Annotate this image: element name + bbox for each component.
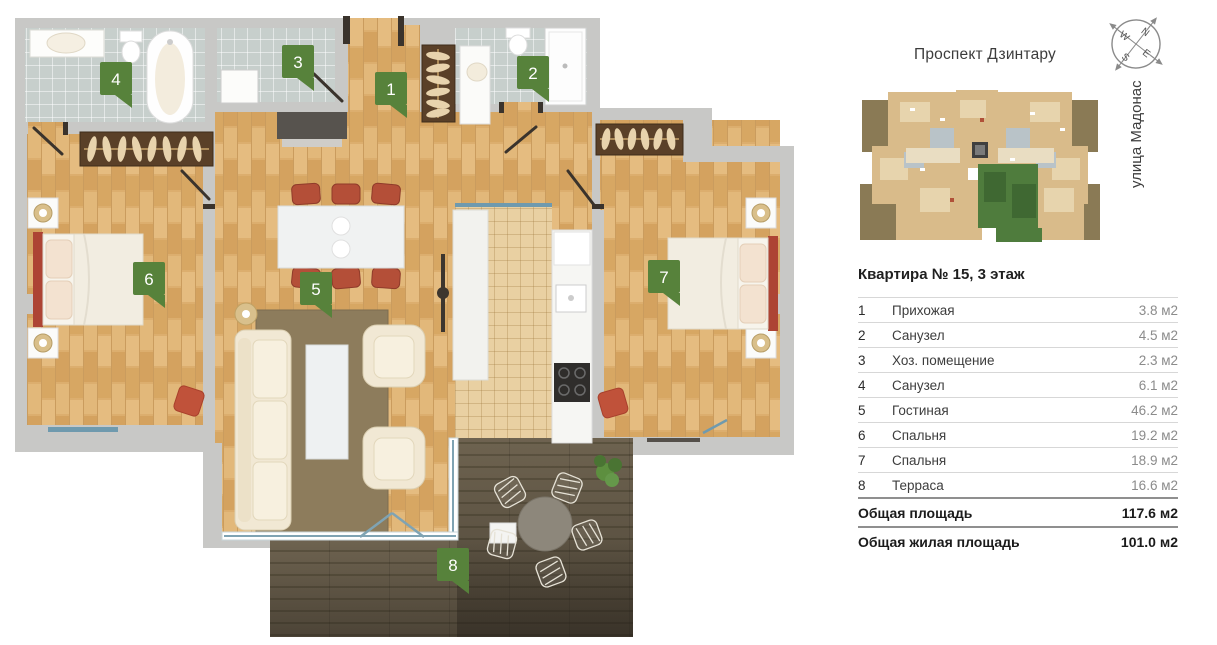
dining-chair [371,183,401,205]
hall-dresser [277,112,347,139]
stove [554,363,590,402]
duvet [74,234,143,325]
kitchen-window [455,203,552,207]
kitchen-island [453,210,488,380]
street-label-right: улица Мадонас [1128,8,1145,188]
sink-basin [47,33,85,53]
washing-machine [221,70,258,103]
pillow [46,281,72,319]
svg-text:8: 8 [448,556,457,575]
terrace-table [518,497,572,551]
svg-text:5: 5 [311,280,320,299]
bed-headboard [33,232,43,327]
pillow [740,244,766,282]
area-row: 1 Прихожая 3.8 м2 [858,297,1178,322]
sofa [235,330,291,530]
area-row: 6 Спальня 19.2 м2 [858,422,1178,447]
sink-basin [467,63,487,81]
toilet-bowl [122,41,140,63]
svg-text:2: 2 [528,64,537,83]
bedroom7-window [647,438,700,442]
plate [332,240,350,258]
floorplan-page: 1 2 3 4 5 6 7 8 Проспект Дзинтару N E S … [0,0,1217,645]
dining-chair [291,183,320,205]
wardrobe-bedroom7 [596,124,683,155]
entrance-gap [350,18,398,28]
sink-counter [460,46,490,124]
bed-headboard [768,236,778,331]
dining-chair [331,267,361,289]
street-label-top: Проспект Дзинтару [845,46,1125,64]
wardrobe-left [80,132,213,166]
selected-apartment-highlight [978,164,1042,242]
bedroom6-window [48,427,118,432]
coffee-table [306,345,348,459]
svg-text:4: 4 [111,70,120,89]
apartment-info-panel: Квартира № 15, 3 этаж 1 Прихожая 3.8 м2 … [858,266,1178,555]
area-row: 3 Хоз. помещение 2.3 м2 [858,347,1178,372]
floor-plan: 1 2 3 4 5 6 7 8 [0,0,820,645]
area-row: 8 Терраса 16.6 м2 [858,472,1178,497]
svg-text:7: 7 [659,268,668,287]
svg-text:1: 1 [386,80,395,99]
dining-chair [332,184,360,204]
area-row: 4 Санузел 6.1 м2 [858,372,1178,397]
armchair [363,427,425,489]
pillow [740,285,766,323]
apartment-title: Квартира № 15, 3 этаж [858,266,1178,283]
dining-table [278,206,404,268]
plate [332,217,350,235]
area-row: 7 Спальня 18.9 м2 [858,447,1178,472]
armchair [363,325,425,387]
building-site-plan [858,86,1102,244]
dining-chair [371,267,400,289]
total-area-row: Общая площадь 117.6 м2 [858,497,1178,526]
toilet-tank [120,31,142,42]
sliding-door-handle [437,287,449,299]
area-row: 2 Санузел 4.5 м2 [858,322,1178,347]
area-row: 5 Гостиная 46.2 м2 [858,397,1178,422]
pillow [46,240,72,278]
living-area-row: Общая жилая площадь 101.0 м2 [858,526,1178,555]
wardrobe-hall [422,45,455,122]
toilet-bowl [509,35,527,55]
svg-text:3: 3 [293,53,302,72]
svg-text:6: 6 [144,270,153,289]
